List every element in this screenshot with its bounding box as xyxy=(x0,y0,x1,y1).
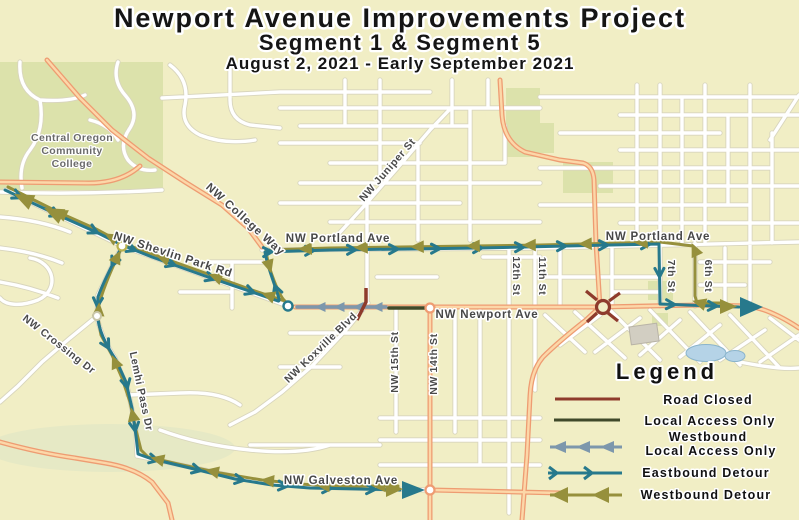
label-newport-ave: NW Newport Ave xyxy=(436,309,539,321)
label-14th-st: NW 14th St xyxy=(428,333,440,394)
building-footprint xyxy=(629,323,659,345)
svg-text:College: College xyxy=(52,158,93,170)
label-portland-ave-west: NW Portland Ave xyxy=(286,233,390,245)
roundabout-galveston-14th xyxy=(426,486,435,495)
legend-label-road-closed: Road Closed xyxy=(663,393,753,407)
page-daterange: August 2, 2021 - Early September 2021 xyxy=(226,54,575,73)
detour-map: NW Portland Ave NW Portland Ave NW Newpo… xyxy=(0,0,799,520)
label-15th-st: NW 15th St xyxy=(389,331,401,392)
page-title: Newport Avenue Improvements Project xyxy=(114,3,686,33)
label-7th-st: 7th St xyxy=(665,260,677,293)
label-12th-st: 12th St xyxy=(510,256,522,295)
legend-title: Legend xyxy=(616,359,718,384)
svg-text:Central Oregon: Central Oregon xyxy=(31,132,113,144)
legend-label-local-access: Local Access Only xyxy=(644,414,775,428)
svg-text:Community: Community xyxy=(41,145,102,157)
legend-label-eastbound-detour: Eastbound Detour xyxy=(642,466,770,480)
page-subtitle: Segment 1 & Segment 5 xyxy=(259,30,541,55)
pond-small xyxy=(725,351,745,362)
label-portland-ave-east: NW Portland Ave xyxy=(606,231,710,243)
roundabout-newport-14th xyxy=(426,304,435,313)
legend-label-westbound-detour: Westbound Detour xyxy=(641,488,772,502)
legend-label-westbound: Westbound xyxy=(669,430,748,444)
roundabout-crossing xyxy=(93,312,101,320)
label-11th-st: 11th St xyxy=(536,257,548,296)
project-map-page: NW Portland Ave NW Portland Ave NW Newpo… xyxy=(0,0,799,520)
label-6th-st: 6th St xyxy=(702,260,714,293)
legend-label-westbound-local-access: Local Access Only xyxy=(645,444,776,458)
roundabout-newport-shevlin xyxy=(284,302,293,311)
label-galveston-ave: NW Galveston Ave xyxy=(284,475,398,487)
